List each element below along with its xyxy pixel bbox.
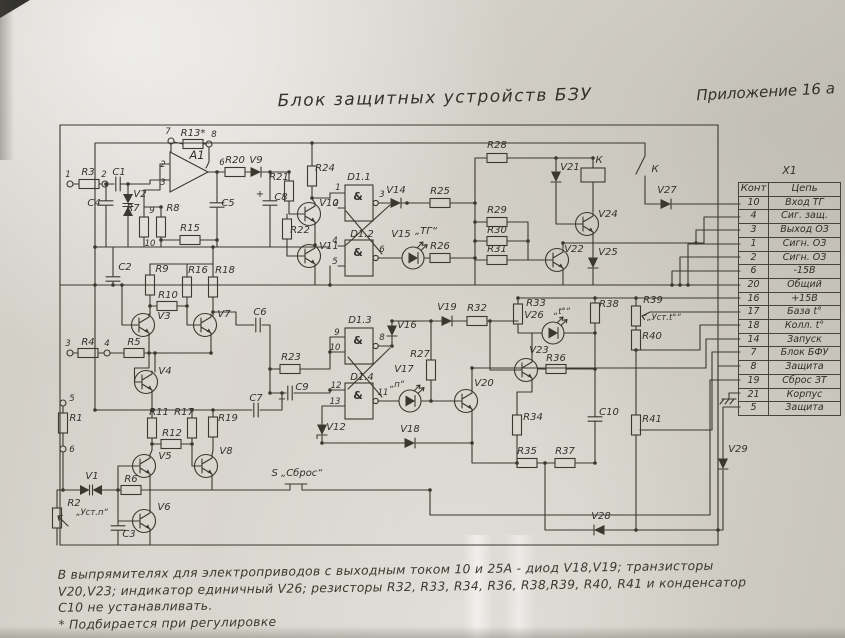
cell-pin: 8: [739, 361, 769, 375]
lbl-g9: 9: [334, 328, 339, 338]
lbl-r1: R1: [69, 413, 82, 424]
capacitor-c7: [254, 403, 258, 417]
cell-pin: 3: [739, 224, 769, 238]
lbl-c3: C3: [122, 529, 135, 540]
lbl-r34: R34: [523, 412, 543, 423]
col-header-circuit: Цепь: [769, 183, 841, 197]
table-row: 3Выход ОЗ: [739, 224, 841, 238]
lbl-pin5: 5: [69, 394, 74, 404]
lbl-d13: D1.3: [348, 315, 372, 326]
cell-circuit: Выход ОЗ: [769, 224, 841, 238]
lbl-c10: C10: [599, 407, 619, 418]
resistor-r11: [148, 418, 157, 438]
lbl-r6: R6: [124, 474, 137, 485]
pin-5: [60, 400, 66, 406]
table-row: 19Сброс ЗТ: [739, 374, 841, 388]
lbl-v27: V27: [657, 185, 677, 196]
lbl-r3: R3: [81, 167, 94, 178]
lbl-c6: C6: [253, 307, 266, 318]
lbl-r23: R23: [281, 352, 301, 363]
resistor-r40: [632, 330, 641, 350]
lbl-v6: V6: [157, 502, 170, 513]
cell-circuit: Сброс ЗТ: [769, 374, 841, 388]
connector-name: X1: [738, 164, 841, 177]
cell-pin: 1: [739, 237, 769, 251]
cell-circuit: +15В: [769, 292, 841, 306]
lbl-r15: R15: [180, 223, 200, 234]
table-row: 16+15В: [739, 292, 841, 306]
lbl-v4: V4: [158, 366, 171, 377]
lbl-amp2: &: [353, 246, 363, 259]
lbl-r20: R20: [225, 155, 245, 166]
pin-3: [67, 350, 73, 356]
capacitor-c9: [288, 386, 292, 400]
lbl-v24: V24: [598, 209, 618, 220]
resistor-r31: [487, 256, 507, 265]
lbl-v15: V15: [391, 229, 411, 240]
table-row: 18Колл. t°: [739, 320, 841, 334]
cell-circuit: Запуск: [769, 333, 841, 347]
terminal-pins: [60, 138, 212, 452]
transistor-v20: [455, 390, 478, 413]
lbl-g13: 13: [330, 397, 341, 407]
cell-circuit: Сиг. защ.: [769, 210, 841, 224]
resistor-r8: [157, 217, 166, 237]
lbl-g5: 5: [332, 257, 337, 267]
resistor-r19: [209, 417, 218, 437]
lbl-v9: V9: [249, 155, 262, 166]
transistor-v8: [195, 455, 218, 478]
lbl-g3: 3: [379, 190, 384, 200]
diode-v19: [442, 316, 453, 326]
lbl-r28: R28: [487, 140, 507, 151]
cell-circuit: Сигн. ОЗ: [769, 237, 841, 251]
lbl-g11: 11: [378, 388, 389, 398]
lbl-v26: V26: [524, 310, 544, 321]
diode-v16: [387, 326, 397, 337]
diode-v18: [405, 438, 416, 448]
resistor-r38: [591, 303, 600, 323]
lbl-c8-plus: +: [256, 189, 264, 200]
lbl-pin6: 6: [69, 445, 75, 455]
table-row: 6-15В: [739, 265, 841, 279]
lbl-r30: R30: [487, 225, 507, 236]
lbl-c9: C9: [295, 382, 308, 393]
lbl-r24: R24: [315, 163, 335, 174]
cell-circuit: -15В: [769, 265, 841, 279]
resistor-r32: [467, 317, 487, 326]
lbl-g6: 6: [379, 245, 385, 255]
lbl-r9: R9: [155, 264, 168, 275]
resistor-r37: [555, 459, 575, 468]
lbl-opamp7: 7: [165, 127, 171, 137]
lbl-r10: R10: [158, 290, 178, 301]
lbl-r29: R29: [487, 205, 507, 216]
diode-v29: [718, 459, 728, 470]
led-v26-t: [542, 317, 567, 344]
lbl-r36: R36: [546, 353, 566, 364]
lbl-r11: R11: [149, 407, 169, 418]
lbl-v17-note: „п“: [390, 380, 405, 390]
cell-pin: 14: [739, 333, 769, 347]
lbl-pin1: 1: [65, 170, 70, 180]
capacitor-c2: [106, 277, 120, 281]
lbl-k-coil: К: [595, 155, 603, 166]
resistor-r35: [517, 459, 537, 468]
lbl-pin9: 9: [149, 206, 154, 216]
lbl-r35: R35: [517, 446, 537, 457]
transistor-v10: [298, 203, 321, 226]
scan-edge-shadow-bottom: [0, 626, 845, 638]
lbl-v2: V2: [133, 189, 146, 200]
cell-pin: 18: [739, 320, 769, 334]
lbl-r40: R40: [642, 331, 662, 342]
lbl-v16: V16: [397, 320, 417, 331]
table-row: 8Защита: [739, 361, 841, 375]
lbl-r21: R21: [269, 172, 289, 183]
cell-pin: 19: [739, 374, 769, 388]
cell-pin: 10: [739, 196, 769, 210]
lbl-r26: R26: [430, 241, 450, 252]
lbl-r7: R7: [126, 203, 140, 214]
lbl-v5: V5: [158, 451, 171, 462]
lbl-g8: 8: [379, 333, 385, 343]
table-row: 20Общий: [739, 278, 841, 292]
lbl-v7: V7: [217, 309, 231, 320]
lbl-r2-note: „Уст.п“: [76, 508, 108, 518]
cell-circuit: Блок БФУ: [769, 347, 841, 361]
cell-pin: 16: [739, 292, 769, 306]
diode-v9: [251, 167, 262, 177]
diode-v25: [588, 258, 598, 269]
cell-circuit: База t°: [769, 306, 841, 320]
lbl-c1: C1: [112, 167, 125, 178]
pin-6: [60, 446, 66, 452]
lbl-amp3: &: [353, 334, 363, 347]
lbl-d14: D1.4: [350, 372, 374, 383]
table-row: 1Сигн. ОЗ: [739, 237, 841, 251]
cell-pin: 6: [739, 265, 769, 279]
lbl-v14: V14: [386, 185, 406, 196]
diode-v28: [594, 525, 605, 535]
lbl-s-reset: S „Сброс“: [271, 467, 323, 479]
lbl-amp1: &: [353, 190, 363, 203]
lbl-r17: R17: [174, 407, 194, 418]
resistor-r25: [430, 199, 450, 208]
lbl-v22: V22: [564, 244, 584, 255]
lbl-v21: V21: [560, 162, 580, 173]
cell-pin: 20: [739, 278, 769, 292]
cell-pin: 7: [739, 347, 769, 361]
resistor-r3: [79, 180, 99, 189]
opamp-pin-8: [206, 141, 212, 147]
transistor-v11: [298, 245, 321, 268]
pin-1: [67, 181, 73, 187]
lbl-g10: 10: [330, 343, 341, 353]
lbl-v19: V19: [437, 302, 457, 313]
lbl-pin4: 4: [104, 339, 109, 349]
lbl-r33: R33: [526, 298, 546, 309]
lbl-r19: R19: [218, 413, 238, 424]
lbl-v15-note: „ТГ“: [415, 226, 438, 237]
table-row: 5Защита: [739, 402, 841, 416]
cell-circuit: Вход ТГ: [769, 196, 841, 210]
resistor-r15: [180, 236, 200, 245]
lbl-v10: V10: [319, 198, 339, 209]
capacitor-c6: [256, 318, 260, 332]
lbl-opamp8: 8: [211, 130, 217, 140]
lbl-c7: C7: [249, 393, 263, 404]
lbl-r41: R41: [642, 414, 662, 425]
lbl-r37: R37: [555, 446, 575, 457]
transistor-v7: [194, 314, 217, 337]
lbl-opamp2: 2: [160, 160, 165, 170]
lbl-v17: V17: [394, 364, 414, 375]
transistor-v4: [135, 371, 158, 394]
resistor-r7: [140, 217, 149, 237]
table-row: 21Корпус: [739, 388, 841, 402]
connector-table-x1: КонтЦепь 10Вход ТГ 4Сиг. защ. 3Выход ОЗ …: [738, 182, 841, 416]
lbl-opamp3: 3: [160, 178, 165, 188]
circuit-schematic: 1 2 3 4 5 6 7 8 2 3 6 9 10 1 2 3 4 5 6 9…: [0, 0, 845, 638]
footnotes: В выпрямителях для электроприводов с вых…: [58, 557, 759, 633]
lbl-v28: V28: [591, 511, 611, 522]
resistor-r23: [280, 365, 300, 374]
lbl-r4: R4: [81, 337, 94, 348]
lbl-amp4: &: [353, 389, 363, 402]
diode-v1: [80, 485, 102, 495]
table-row: 7Блок БФУ: [739, 347, 841, 361]
lbl-c4: C4: [87, 198, 100, 209]
lbl-g12: 12: [331, 381, 342, 391]
lbl-d12: D1.2: [350, 229, 374, 240]
resistor-r34: [513, 415, 522, 435]
cell-circuit: Корпус: [769, 388, 841, 402]
lbl-c2: C2: [118, 262, 131, 273]
lbl-pin10: 10: [145, 239, 156, 249]
table-row: 14Запуск: [739, 333, 841, 347]
resistor-r27: [427, 360, 436, 380]
table-row: 4Сиг. защ.: [739, 210, 841, 224]
lbl-v20: V20: [474, 378, 494, 389]
led-v15-tg: [402, 242, 427, 269]
lbl-c9-plus: +: [278, 394, 286, 405]
lbl-r18: R18: [215, 265, 235, 276]
lbl-pin2: 2: [101, 170, 106, 180]
transistor-v3: [132, 314, 155, 337]
lbl-r8: R8: [166, 203, 179, 214]
lbl-d11: D1.1: [347, 172, 371, 183]
pin-4: [104, 350, 110, 356]
cell-circuit: Защита: [769, 361, 841, 375]
lbl-v25: V25: [598, 247, 618, 258]
lbl-r31: R31: [487, 244, 507, 255]
diodes: [80, 167, 728, 535]
resistor-r36: [546, 365, 566, 374]
transistor-v24: [576, 213, 599, 236]
lbl-v12: V12: [326, 422, 346, 433]
resistor-r18: [209, 277, 218, 297]
resistor-r39-pot: [632, 306, 641, 326]
lbl-v3: V3: [157, 311, 170, 322]
lbl-v18: V18: [400, 424, 420, 435]
resistor-r17: [188, 418, 197, 438]
lbl-r27: R27: [410, 349, 430, 360]
transistor-v23: [515, 359, 538, 382]
lbl-v11: V11: [319, 241, 339, 252]
resistor-r6: [121, 486, 141, 495]
resistor-r5: [124, 349, 144, 358]
relay-k: [581, 168, 605, 182]
lbl-r5: R5: [127, 337, 140, 348]
cell-circuit: Колл. t°: [769, 320, 841, 334]
lbl-r39: R39: [643, 295, 663, 306]
lbl-v1: V1: [85, 471, 98, 482]
scanned-schematic-page: Блок защитных устройств БЗУ Приложение 1…: [0, 0, 845, 638]
cell-circuit: Сигн. ОЗ: [769, 251, 841, 265]
lbl-r32: R32: [467, 303, 487, 314]
lbl-r16: R16: [188, 265, 208, 276]
lbl-a1: A1: [188, 148, 204, 162]
cell-pin: 4: [739, 210, 769, 224]
cell-pin: 17: [739, 306, 769, 320]
lbl-r39-note: „Уст.t°“: [647, 313, 681, 323]
resistor-r41: [632, 415, 641, 435]
lbl-g1: 1: [335, 183, 340, 193]
col-header-pin: Конт: [739, 183, 769, 197]
table-row: 17База t°: [739, 306, 841, 320]
lbl-r25: R25: [430, 186, 450, 197]
cell-pin: 2: [739, 251, 769, 265]
lbl-c5: C5: [221, 198, 234, 209]
cell-circuit: Защита: [769, 402, 841, 416]
transistor-v6: [133, 510, 156, 533]
cell-pin: 21: [739, 388, 769, 402]
diode-v14: [391, 198, 402, 208]
cell-circuit: Общий: [769, 278, 841, 292]
resistor-r28: [487, 154, 507, 163]
lbl-v29: V29: [728, 444, 748, 455]
lbl-c8: C8: [274, 192, 287, 203]
cell-pin: 5: [739, 402, 769, 416]
lbl-r22: R22: [290, 225, 310, 236]
resistor-r12: [161, 440, 181, 449]
lbl-pin3: 3: [65, 339, 70, 349]
lbl-v8: V8: [219, 446, 232, 457]
lbl-r12: R12: [162, 428, 182, 439]
resistor-r10: [157, 302, 177, 311]
diode-v21: [551, 172, 561, 183]
relay-coil-k: [581, 168, 605, 182]
resistor-r26: [430, 254, 450, 263]
lbl-v26-note: „t°“: [554, 307, 571, 317]
lbl-r38: R38: [599, 299, 619, 310]
resistor-r20: [225, 168, 245, 177]
diode-v27: [661, 199, 672, 209]
table-row: 2Сигн. ОЗ: [739, 251, 841, 265]
lbl-k-contact: К: [651, 164, 659, 175]
table-row: 10Вход ТГ: [739, 196, 841, 210]
resistor-r16: [183, 277, 192, 297]
lbl-r13: R13*: [181, 128, 206, 139]
